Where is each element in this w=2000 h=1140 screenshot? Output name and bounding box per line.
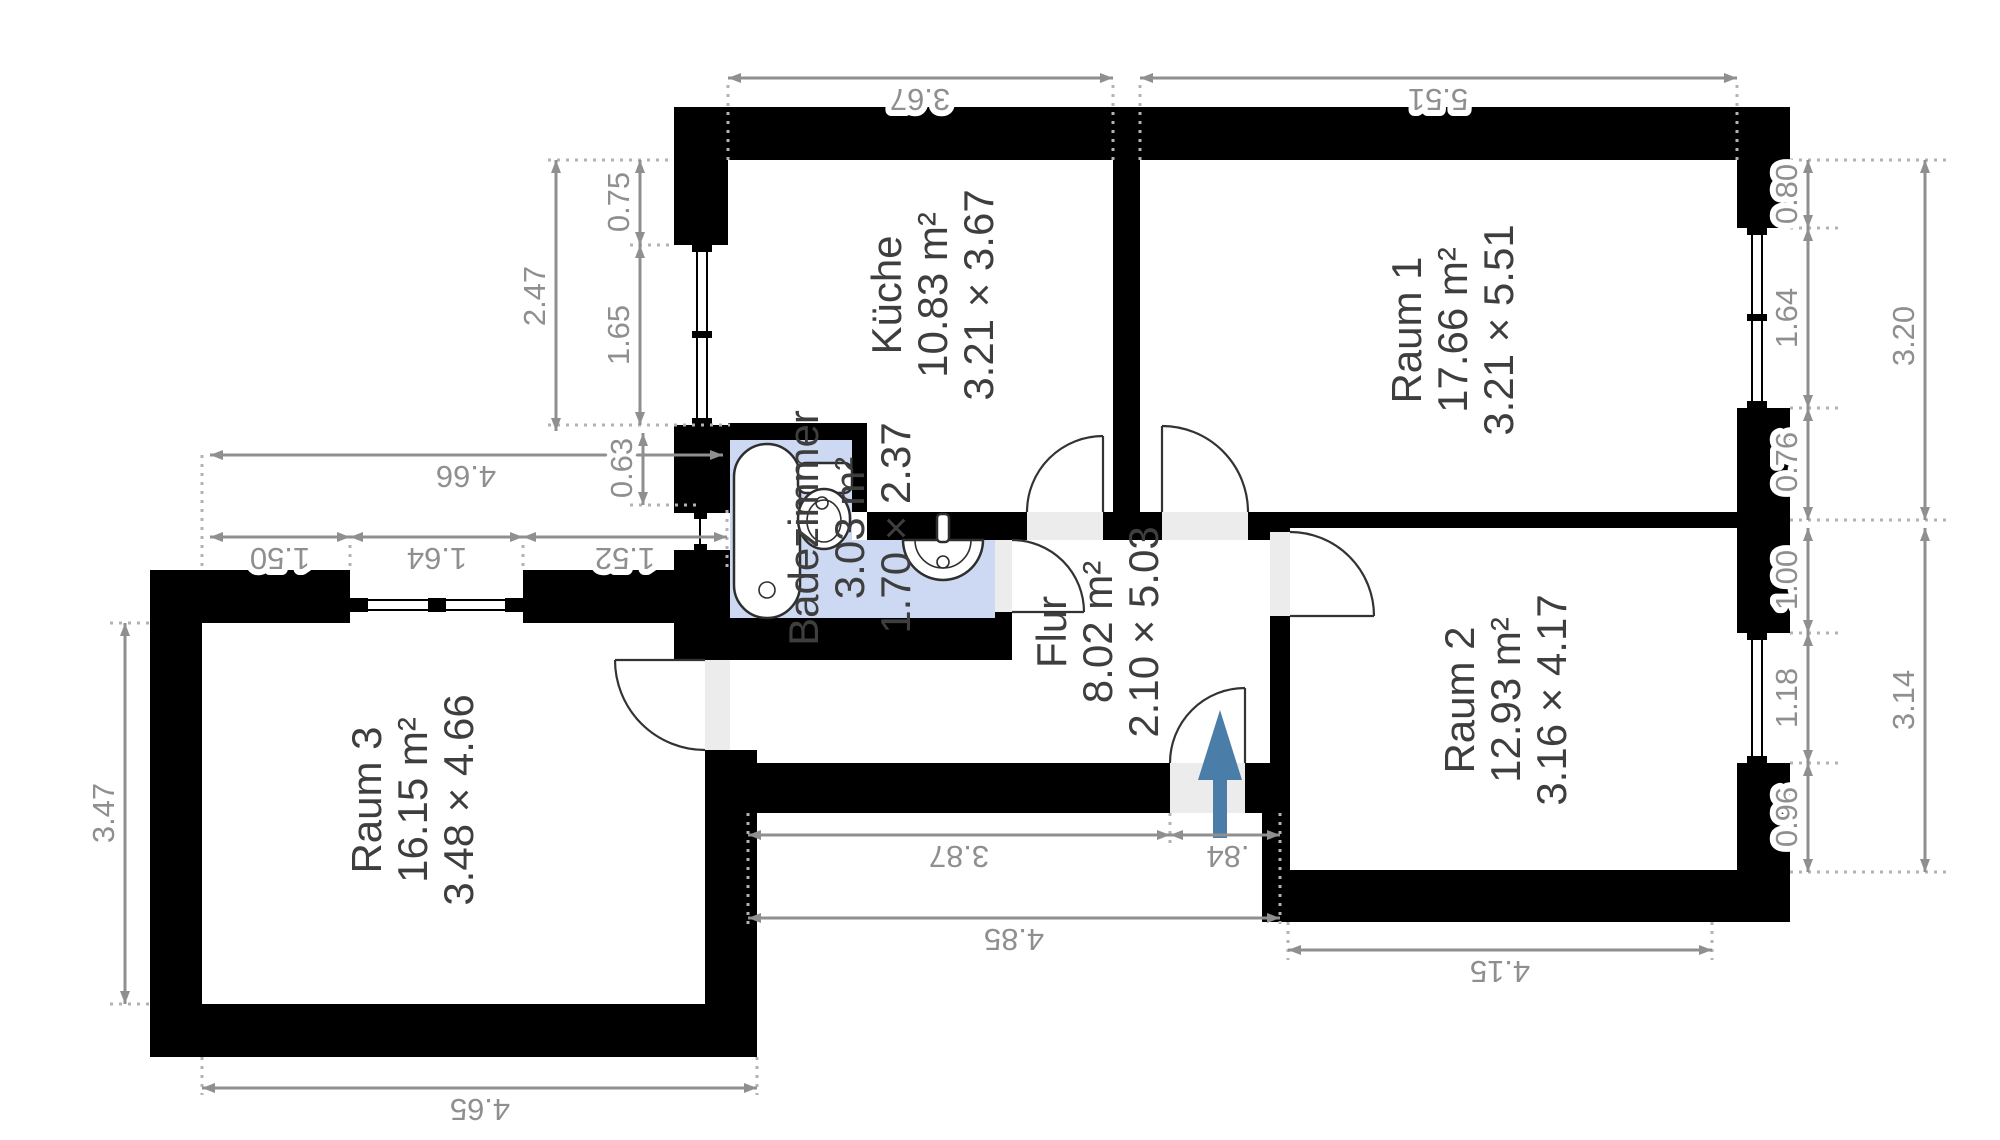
room-name: Flur bbox=[1028, 596, 1075, 668]
wall-segment bbox=[1103, 512, 1113, 540]
dim-label: 4.65 bbox=[450, 1092, 510, 1127]
dim-label: 0.63 bbox=[604, 438, 639, 498]
room-name: Küche bbox=[863, 235, 910, 354]
dim-label: 0.80 bbox=[1769, 164, 1804, 224]
dim-label: 3.87 bbox=[929, 839, 989, 874]
dim-label: 3.47 bbox=[86, 783, 121, 843]
dim-label: 3.14 bbox=[1886, 670, 1921, 730]
room-dims: 3.21 × 3.67 bbox=[955, 189, 1002, 400]
dim-label: 4.66 bbox=[436, 459, 496, 494]
dim-label: 1.65 bbox=[601, 305, 636, 365]
dim-label: 4.85 bbox=[984, 922, 1044, 957]
room-name: Raum 2 bbox=[1436, 626, 1483, 773]
wall-segment bbox=[150, 1004, 757, 1057]
dim-label: 1.50 bbox=[250, 541, 310, 576]
room-area: 16.15 m² bbox=[389, 717, 436, 883]
room-name: Raum 3 bbox=[343, 726, 390, 873]
dim-label: 1.64 bbox=[1769, 288, 1804, 348]
wall-segment bbox=[1290, 512, 1737, 528]
floor-plan-svg: 3.67 5.51 4.66 1.50 1.64 1.52 3.87 .84 4… bbox=[0, 0, 2000, 1140]
door-opening-badezimmer bbox=[995, 540, 1012, 612]
floor-plan-canvas: 3.67 5.51 4.66 1.50 1.64 1.52 3.87 .84 4… bbox=[0, 0, 2000, 1140]
wall-segment bbox=[757, 763, 1170, 813]
wall-segment bbox=[1248, 512, 1270, 540]
room-name: Raum 1 bbox=[1383, 256, 1430, 403]
room-dims: 1.70 × 2.37 bbox=[872, 422, 919, 633]
room-dims: 2.10 × 5.03 bbox=[1120, 526, 1167, 737]
room-dims: 3.21 × 5.51 bbox=[1475, 224, 1522, 435]
door-opening-raum3 bbox=[705, 660, 730, 750]
wall-segment bbox=[674, 107, 1790, 160]
dim-label: 4.15 bbox=[1470, 954, 1530, 989]
dim-label: 1.18 bbox=[1769, 668, 1804, 728]
door-opening-raum1 bbox=[1162, 512, 1248, 540]
dim-label: 1.00 bbox=[1769, 550, 1804, 610]
dim-label: 3.67 bbox=[890, 82, 950, 117]
room-dims: 3.48 × 4.66 bbox=[435, 694, 482, 905]
room-area: 3.03 m² bbox=[826, 457, 873, 599]
dim-label: 0.75 bbox=[601, 172, 636, 232]
wall-segment bbox=[674, 160, 728, 245]
dim-label: 3.20 bbox=[1886, 306, 1921, 366]
wall-segment bbox=[674, 425, 730, 513]
wall-segment bbox=[995, 612, 1012, 660]
room-area: 12.93 m² bbox=[1482, 617, 1529, 783]
room-area: 10.83 m² bbox=[909, 212, 956, 378]
room-dims: 3.16 × 4.17 bbox=[1528, 594, 1575, 805]
door-opening-kueche bbox=[1027, 512, 1103, 540]
wall-segment bbox=[1113, 160, 1140, 540]
window-kueche bbox=[674, 245, 728, 425]
dim-label: 1.52 bbox=[595, 541, 655, 576]
wall-segment bbox=[1270, 512, 1290, 532]
wall-segment bbox=[730, 618, 1012, 660]
dim-label: 1.64 bbox=[407, 541, 467, 576]
wall-segment bbox=[150, 570, 350, 623]
wall-segment bbox=[523, 570, 730, 623]
door-opening-raum2 bbox=[1270, 532, 1290, 616]
window-raum3 bbox=[350, 570, 523, 623]
dim-label: .84 bbox=[1206, 839, 1249, 874]
dim-label: 5.51 bbox=[1408, 82, 1468, 117]
room-name: Badezimmer bbox=[780, 410, 827, 646]
dim-label: 0.96 bbox=[1769, 787, 1804, 847]
window-badezimmer bbox=[674, 513, 730, 550]
room-area: 17.66 m² bbox=[1429, 247, 1476, 413]
wall-segment bbox=[150, 623, 202, 1004]
wall-segment bbox=[1262, 870, 1790, 922]
room-area: 8.02 m² bbox=[1074, 561, 1121, 703]
dim-label: 2.47 bbox=[517, 266, 552, 326]
dim-label: 0.76 bbox=[1769, 432, 1804, 492]
